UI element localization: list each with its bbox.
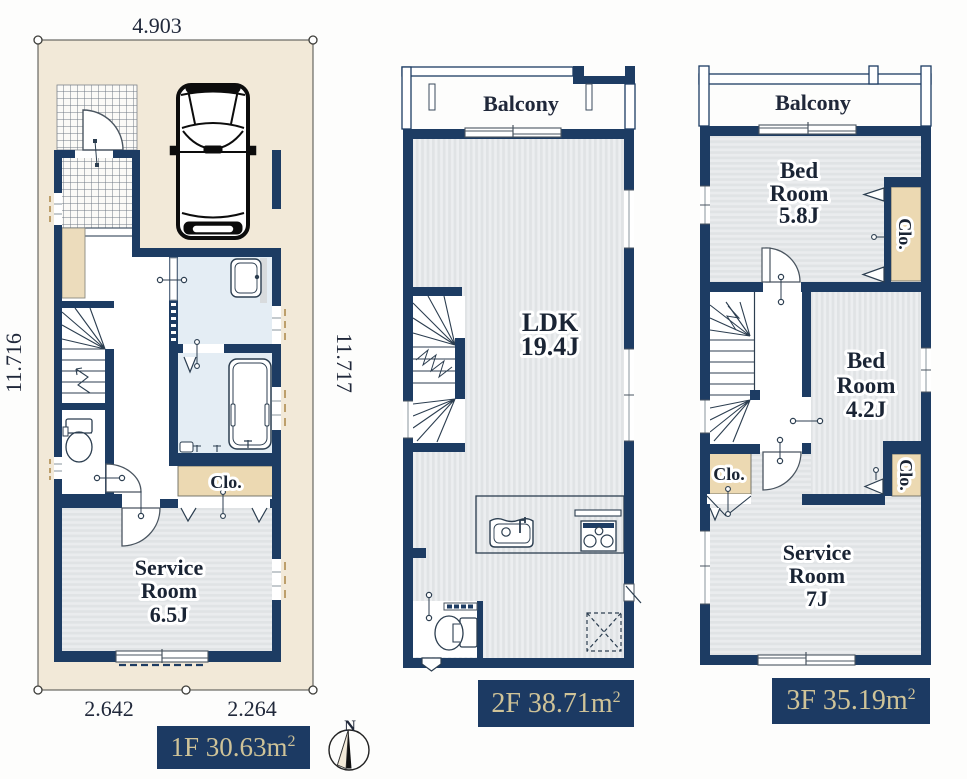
svg-text:Balcony: Balcony xyxy=(775,90,851,115)
svg-text:7J: 7J xyxy=(806,586,828,611)
svg-text:Bed: Bed xyxy=(780,158,819,183)
svg-text:Room: Room xyxy=(789,563,845,588)
svg-text:Clo.: Clo. xyxy=(210,472,242,492)
svg-text:11.716: 11.716 xyxy=(1,333,26,393)
svg-text:Room: Room xyxy=(141,578,197,603)
svg-text:N: N xyxy=(344,718,356,735)
svg-text:Bed: Bed xyxy=(847,348,886,373)
svg-text:2.264: 2.264 xyxy=(227,696,277,721)
svg-text:Room: Room xyxy=(837,373,896,398)
svg-text:19.4J: 19.4J xyxy=(521,332,580,361)
svg-text:6.5J: 6.5J xyxy=(150,602,189,627)
svg-text:Clo.: Clo. xyxy=(896,459,916,491)
svg-text:3F 35.19m2: 3F 35.19m2 xyxy=(786,685,915,716)
svg-text:2.642: 2.642 xyxy=(84,696,134,721)
svg-text:1F 30.63m2: 1F 30.63m2 xyxy=(170,732,295,762)
svg-text:Clo.: Clo. xyxy=(713,464,745,484)
svg-text:11.717: 11.717 xyxy=(332,333,357,393)
svg-text:Service: Service xyxy=(135,555,204,580)
svg-text:Balcony: Balcony xyxy=(483,91,559,116)
svg-text:4.903: 4.903 xyxy=(132,13,182,38)
svg-text:4.2J: 4.2J xyxy=(846,397,886,422)
svg-text:Clo.: Clo. xyxy=(895,218,915,250)
svg-text:Service: Service xyxy=(783,540,852,565)
svg-text:5.8J: 5.8J xyxy=(779,203,819,228)
svg-text:2F 38.71m2: 2F 38.71m2 xyxy=(491,688,620,719)
